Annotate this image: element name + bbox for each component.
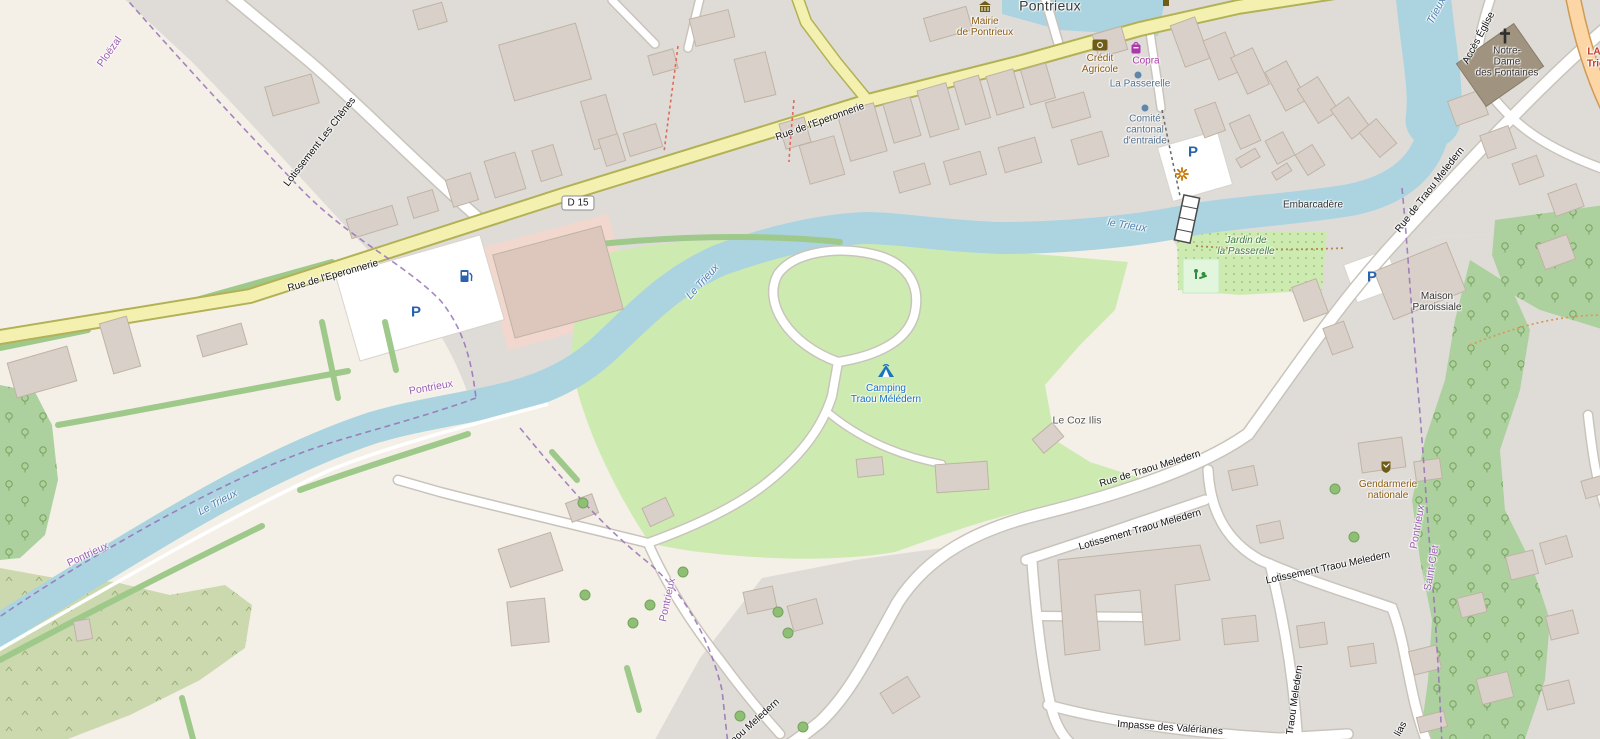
poi-label-jardin: Jardin de la Passerelle [1217, 235, 1274, 257]
poi-label-embarcadere: Embarcadère [1283, 200, 1343, 211]
poi-label-notre-dame: Notre- Dame des Fontaines [1476, 46, 1539, 79]
poi-label-line: Gendarmerie [1359, 479, 1417, 490]
poi-label-line: Traou Mélédern [851, 394, 921, 405]
shop-icon [1131, 42, 1142, 55]
hamlet-label-le-coz-ilis: Le Coz Ilis [1052, 416, 1101, 427]
route-ref-label: Trig [1587, 59, 1600, 70]
fuel-icon [460, 269, 473, 283]
poi-label-line: Dame [1476, 57, 1539, 68]
city-label-pontrieux: Pontrieux [1019, 1, 1081, 12]
poi-dot-icon [1142, 105, 1149, 112]
poi-label-line: Paroissiale [1413, 302, 1462, 313]
poi-label-comite: Comité cantonal d'entraide [1123, 114, 1167, 147]
poi-label-line: Notre- [1476, 46, 1539, 57]
poi-label-copra: Copra [1132, 56, 1159, 67]
poi-label-line: Camping [851, 383, 921, 394]
poi-label-line: Crédit [1082, 53, 1118, 64]
poi-label-camping: Camping Traou Mélédern [851, 383, 921, 405]
poi-label-mairie: Mairie de Pontrieux [957, 16, 1013, 38]
gendarmerie-icon [1381, 461, 1392, 474]
poi-label-line: Comité [1123, 114, 1167, 125]
poi-label-line: d'entraide [1123, 136, 1167, 147]
poi-label-line: la Passerelle [1217, 246, 1274, 257]
poi-label-maison-paroissiale: Maison Paroissiale [1413, 291, 1462, 313]
route-ref-label: LA [1587, 47, 1600, 58]
parking-icon: P [411, 304, 421, 321]
poi-label-gendarmerie: Gendarmerie nationale [1359, 479, 1417, 501]
poi-label-line: cantonal [1123, 125, 1167, 136]
town-hall-icon [978, 1, 992, 13]
map-base-layer [0, 0, 1600, 739]
attraction-asterisk-icon [1175, 167, 1189, 181]
playground-icon [1192, 268, 1208, 282]
poi-label-line: des Fontaines [1476, 68, 1539, 79]
poi-dot-icon [1135, 72, 1142, 79]
road-ref-shield-d15: D 15 [561, 196, 594, 211]
poi-label-line: de Pontrieux [957, 27, 1013, 38]
christian-cross-icon [1499, 29, 1511, 44]
tent-icon [877, 364, 895, 378]
poi-label-line: Maison [1413, 291, 1462, 302]
parking-icon: P [1367, 269, 1377, 286]
poi-label-la-passerelle: La Passerelle [1110, 79, 1171, 90]
poi-label-line: nationale [1359, 490, 1417, 501]
bank-icon [1093, 40, 1108, 51]
monument-icon [1161, 0, 1171, 6]
map-canvas[interactable]: P P P Pontrieux Le Coz Ilis Rue de l'Epe… [0, 0, 1600, 739]
poi-label-credit-agricole: Crédit Agricole [1082, 53, 1118, 75]
poi-label-line: Jardin de [1217, 235, 1274, 246]
poi-label-line: Mairie [957, 16, 1013, 27]
poi-label-line: Agricole [1082, 64, 1118, 75]
parking-icon: P [1188, 144, 1198, 161]
